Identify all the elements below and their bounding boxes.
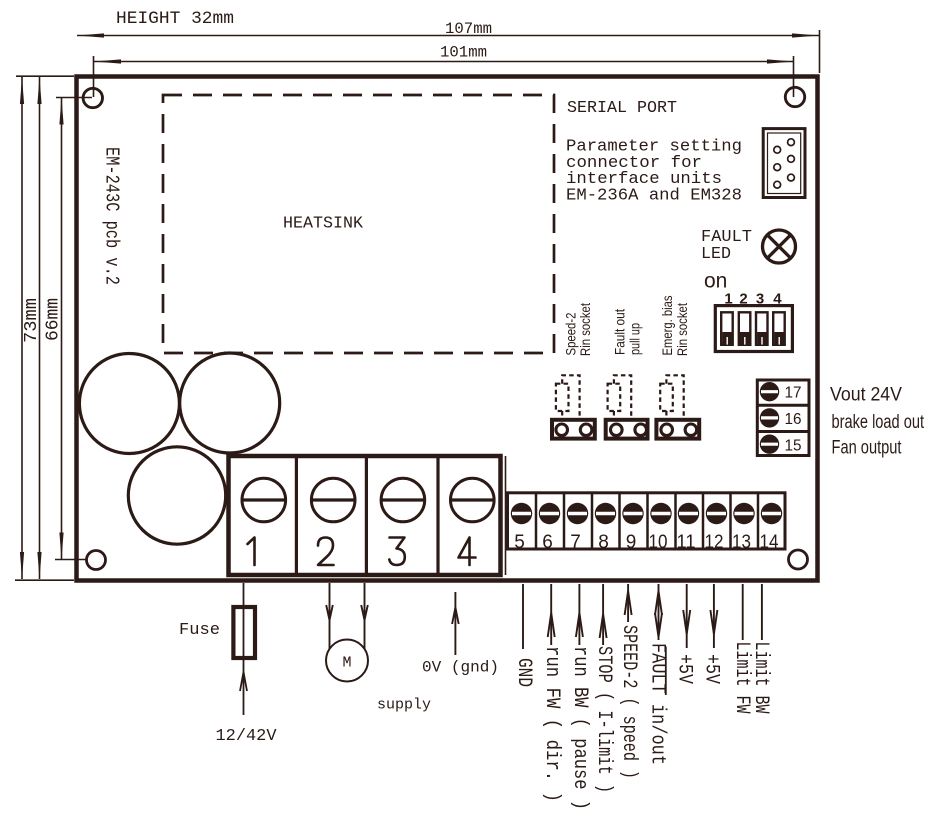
svg-text:SERIAL PORT: SERIAL PORT — [567, 99, 677, 118]
svg-text:pull up: pull up — [627, 323, 643, 355]
svg-text:run FW ( dir. ): run FW ( dir. ) — [540, 646, 563, 802]
svg-text:Fan output: Fan output — [832, 438, 903, 459]
svg-text:on: on — [704, 270, 727, 293]
svg-text:5: 5 — [514, 532, 525, 553]
svg-text:16: 16 — [785, 411, 802, 428]
svg-text:STOP ( I-limit ): STOP ( I-limit ) — [592, 646, 615, 793]
svg-text:Speed-2: Speed-2 — [563, 312, 579, 355]
svg-text:12: 12 — [705, 532, 724, 553]
svg-text:6: 6 — [542, 532, 553, 553]
svg-text:Emerg. bias: Emerg. bias — [659, 296, 675, 356]
svg-text:M: M — [342, 655, 351, 672]
svg-text:13: 13 — [732, 532, 751, 553]
svg-text:9: 9 — [626, 532, 637, 553]
svg-text:SPEED-2 ( speed ): SPEED-2 ( speed ) — [617, 625, 640, 779]
svg-text:LED: LED — [701, 245, 731, 264]
svg-text:EM-236A and EM328: EM-236A and EM328 — [566, 186, 742, 205]
svg-text:17: 17 — [785, 385, 802, 402]
svg-text:107mm: 107mm — [445, 20, 492, 38]
svg-text:supply: supply — [377, 697, 431, 714]
svg-text:+5V: +5V — [673, 654, 696, 684]
svg-text:GND: GND — [512, 658, 535, 687]
svg-text:Rin socket: Rin socket — [674, 303, 690, 356]
svg-text:HEATSINK: HEATSINK — [283, 215, 364, 234]
svg-text:66mm: 66mm — [44, 298, 64, 341]
svg-text:brake load out: brake load out — [832, 412, 925, 433]
svg-text:11: 11 — [677, 532, 696, 553]
svg-text:14: 14 — [760, 532, 779, 553]
svg-text:7: 7 — [570, 532, 581, 553]
svg-text:8: 8 — [598, 532, 609, 553]
svg-text:Limit BW: Limit BW — [749, 642, 772, 714]
svg-text:10: 10 — [649, 532, 668, 553]
svg-text:15: 15 — [785, 437, 802, 454]
svg-text:Fuse: Fuse — [179, 621, 220, 640]
svg-text:HEIGHT 32mm: HEIGHT 32mm — [116, 9, 234, 29]
svg-text:EM-243C pcb v.2: EM-243C pcb v.2 — [100, 147, 122, 285]
svg-text:+5V: +5V — [700, 654, 723, 684]
svg-text:Fault out: Fault out — [611, 309, 627, 355]
svg-text:Rin socket: Rin socket — [577, 303, 593, 356]
svg-text:12/42V: 12/42V — [216, 727, 278, 746]
svg-text:Vout 24V: Vout 24V — [830, 385, 902, 406]
svg-text:101mm: 101mm — [440, 44, 487, 62]
svg-text:73mm: 73mm — [22, 298, 42, 343]
svg-text:0V (gnd): 0V (gnd) — [422, 659, 499, 677]
svg-text:run BW ( pause ): run BW ( pause ) — [568, 646, 591, 810]
